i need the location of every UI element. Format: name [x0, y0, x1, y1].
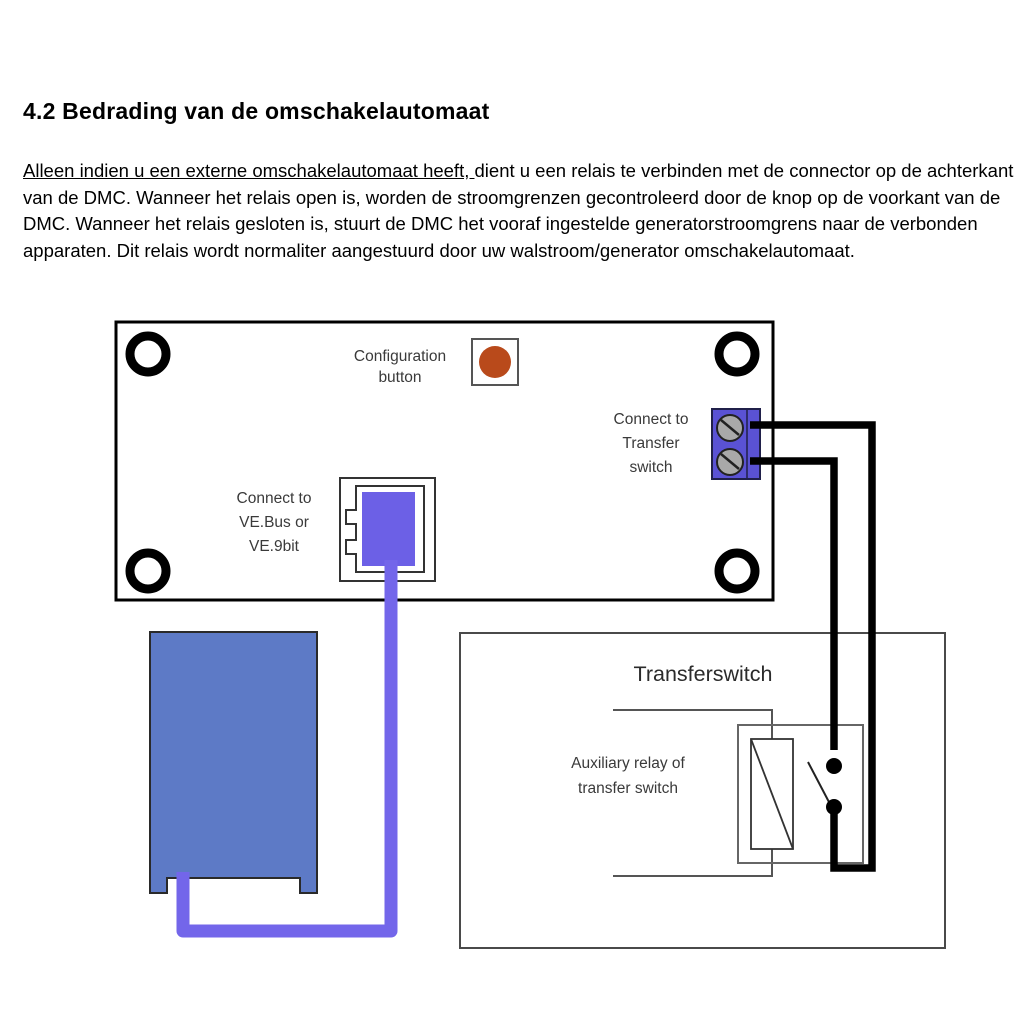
configuration-button-icon — [479, 346, 511, 378]
configuration-button — [472, 339, 518, 385]
document-page: 4.2 Bedrading van de omschakelautomaat A… — [0, 0, 1024, 1024]
transferswitch-title: Transferswitch — [634, 662, 773, 686]
rj45-plug-icon — [362, 492, 415, 566]
transfer-connector-label-line1: Connect to — [614, 411, 689, 428]
transfer-connector-label-line3: switch — [629, 459, 672, 476]
vebus-connector-label-line2: VE.Bus or — [239, 514, 309, 531]
aux-relay-label-line1: Auxiliary relay of — [571, 755, 685, 772]
configuration-label-line1: Configuration — [354, 348, 446, 365]
vebus-connector-label-line1: Connect to — [237, 490, 312, 507]
terminal-block — [712, 409, 760, 479]
transfer-connector-label-line2: Transfer — [622, 435, 679, 452]
contact-dot-lower — [826, 799, 842, 815]
configuration-label-line2: button — [378, 369, 421, 386]
dmc-panel: Configuration button Connect to Transfer… — [116, 322, 773, 600]
contact-dot-upper — [826, 758, 842, 774]
vebus-device-box — [150, 632, 317, 893]
wiring-diagram: Configuration button Connect to Transfer… — [0, 0, 1024, 1024]
vebus-connector-label-line3: VE.9bit — [249, 538, 300, 555]
aux-relay-label-line2: transfer switch — [578, 780, 678, 797]
